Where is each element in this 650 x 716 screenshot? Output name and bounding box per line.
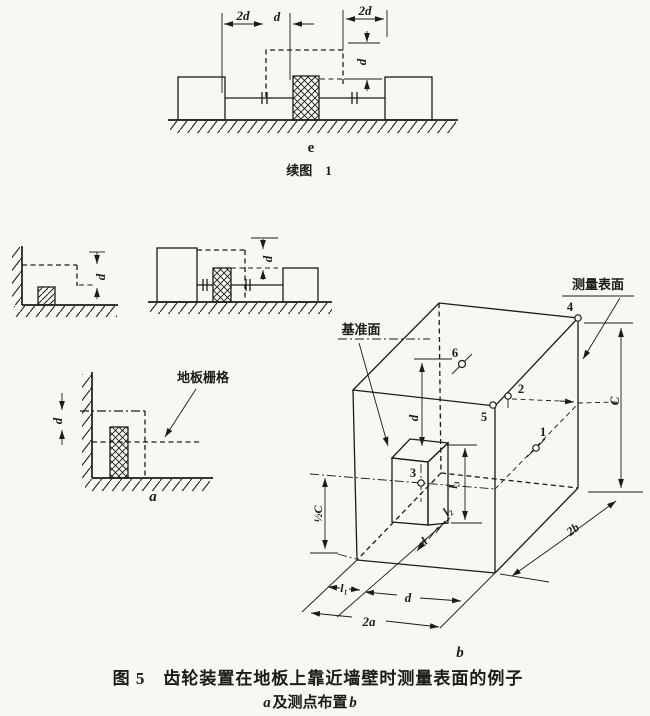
left-machine-box: [157, 248, 197, 302]
caption-line2-text: 及测点布置: [272, 693, 347, 711]
box-hidden-edge: [441, 473, 578, 488]
gear-unit-block: [213, 268, 231, 302]
dim-slash-tick: [436, 521, 445, 533]
figure-a-label: a: [149, 489, 157, 505]
dim-arrow: [386, 621, 439, 627]
gear-unit-block: [110, 427, 128, 478]
measure-point-3: [418, 480, 424, 486]
scanned-standard-page: 2d d 2d d e 续图 1: [0, 0, 650, 716]
dim-arrow: [349, 589, 360, 590]
figure-shaft-line: d: [148, 238, 332, 314]
point-6-label: 6: [452, 346, 458, 360]
point-4-label: 4: [567, 300, 574, 314]
dim-half-c-label: ½C: [311, 505, 325, 523]
dim-arrow: [420, 598, 461, 601]
box-edge: [357, 560, 495, 573]
measure-surface-label: 测量表面: [572, 277, 624, 292]
right-machine-box: [385, 77, 432, 120]
figure-e-label: e: [308, 140, 315, 156]
dim-d-label: d: [260, 255, 275, 262]
dim-2b-label: 2b: [563, 520, 582, 539]
figure-b-measurement-box-3d: d 6 2 5 4 1 3 l₃: [302, 277, 643, 661]
dim-d-gap-label: d: [274, 9, 281, 24]
dim-l3-label: l₃: [446, 481, 460, 489]
figure-caption: 图 5 齿轮装置在地板上靠近墙壁时测量表面的例子 a 及测点布置 b: [113, 668, 524, 711]
figure-e-caption: 续图 1: [286, 163, 332, 178]
dim-l1-label: l₁: [340, 581, 348, 595]
box-hidden-edge: [439, 303, 441, 473]
dim-l2-label: l₂: [440, 503, 455, 518]
figure-e-gear-between-machines: 2d d 2d d e 续图 1: [168, 3, 458, 178]
dim-d-vertical-label: d: [406, 414, 421, 421]
floor-grid-label: 地板栅格: [177, 370, 230, 385]
point-3-label: 3: [410, 466, 416, 480]
right-machine-box: [283, 268, 318, 302]
dim-arrow: [311, 613, 352, 617]
caption-line2-a: a: [263, 695, 271, 711]
figure-b-label: b: [456, 645, 464, 661]
gear-unit-block: [293, 76, 319, 120]
caption-line1: 图 5 齿轮装置在地板上靠近墙壁时测量表面的例子: [113, 668, 524, 688]
dashed-pointer: [512, 399, 560, 401]
dim-2d-left-label: 2d: [236, 8, 251, 23]
caption-line2-b: b: [349, 695, 357, 711]
ext-line: [302, 560, 357, 612]
dim-d-label: d: [93, 273, 108, 280]
dim-d-vertical-label: d: [354, 58, 369, 65]
leader-arrow: [583, 298, 620, 359]
machine-block: [38, 287, 55, 305]
measure-point-2: [505, 393, 511, 399]
datum-plane-label: 基准面: [340, 322, 380, 337]
measure-point-4: [575, 315, 581, 321]
box-edge: [353, 390, 357, 560]
measure-point-6: [459, 361, 466, 368]
dim-tick: [500, 574, 549, 582]
wall-hatch: [82, 374, 92, 478]
dim-arrow: [512, 542, 560, 576]
dim-2d-right-label: 2d: [358, 3, 373, 18]
dim-c-label: C: [607, 396, 622, 405]
figure-a-gear-near-wall: d a 地板栅格: [50, 370, 230, 505]
measure-point-5: [490, 402, 496, 408]
floor-hatch: [85, 479, 210, 491]
dim-d-bottom-label: d: [405, 590, 412, 605]
dim-slash-tick: [429, 527, 438, 539]
floor-hatch: [14, 306, 117, 317]
figure-wall-clearance: d: [12, 246, 118, 317]
dim-arrow: [560, 401, 574, 402]
left-machine-box: [178, 77, 225, 120]
ground-hatch: [150, 303, 332, 314]
point-2-label: 2: [518, 382, 524, 396]
ground-hatch: [170, 121, 456, 133]
dim-arrow: [365, 592, 397, 595]
dim-d-label: d: [50, 417, 65, 424]
measurement-box-top-face: [353, 303, 578, 406]
dim-arrow: [328, 587, 340, 588]
dim-2a-label: 2a: [362, 614, 377, 629]
leader-arrow: [165, 389, 196, 437]
dashed-tick: [338, 554, 356, 559]
point-1-label: 1: [540, 425, 546, 439]
figure-canvas: 2d d 2d d e 续图 1: [0, 0, 650, 716]
dim-arrow: [560, 501, 616, 542]
measure-point-1: [533, 445, 539, 451]
wall-hatch: [12, 247, 22, 305]
point-5-label: 5: [481, 410, 487, 424]
